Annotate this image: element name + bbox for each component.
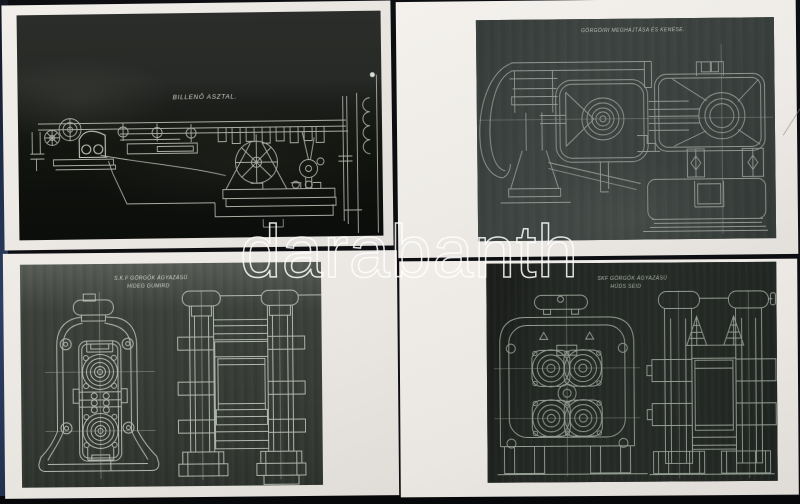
svg-text:darabanth: darabanth <box>240 210 579 293</box>
